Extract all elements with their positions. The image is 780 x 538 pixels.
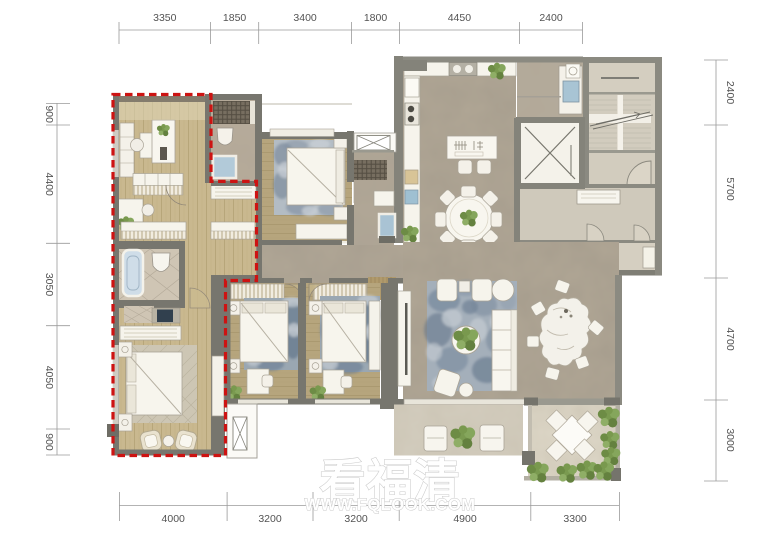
- svg-text:900: 900: [43, 105, 55, 123]
- svg-text:4400: 4400: [43, 173, 55, 197]
- svg-text:4700: 4700: [724, 327, 736, 351]
- svg-text:3200: 3200: [344, 513, 368, 525]
- svg-text:WWW.FQLOOK.COM: WWW.FQLOOK.COM: [304, 496, 475, 514]
- svg-text:3350: 3350: [153, 12, 177, 24]
- svg-text:3200: 3200: [258, 513, 282, 525]
- svg-text:3050: 3050: [43, 273, 55, 297]
- svg-text:2400: 2400: [724, 81, 736, 105]
- svg-text:3400: 3400: [293, 12, 317, 24]
- svg-text:900: 900: [43, 433, 55, 451]
- svg-text:1850: 1850: [223, 12, 247, 24]
- svg-text:1800: 1800: [364, 12, 388, 24]
- svg-text:4450: 4450: [448, 12, 472, 24]
- svg-text:3300: 3300: [563, 513, 587, 525]
- svg-text:4900: 4900: [453, 513, 477, 525]
- svg-text:3000: 3000: [724, 428, 736, 452]
- svg-text:5700: 5700: [724, 177, 736, 201]
- svg-text:2400: 2400: [539, 12, 563, 24]
- svg-text:4050: 4050: [43, 366, 55, 390]
- svg-text:4000: 4000: [162, 513, 186, 525]
